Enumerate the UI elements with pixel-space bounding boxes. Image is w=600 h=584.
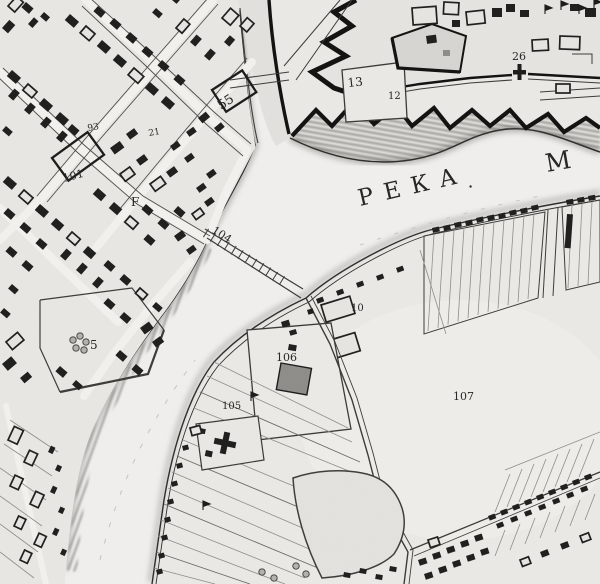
- paper-grain-overlay: [0, 0, 600, 584]
- map-canvas: РЕКА.М10455101F9321513122610106105107: [0, 0, 600, 584]
- historical-map: РЕКА.М10455101F9321513122610106105107: [0, 0, 600, 584]
